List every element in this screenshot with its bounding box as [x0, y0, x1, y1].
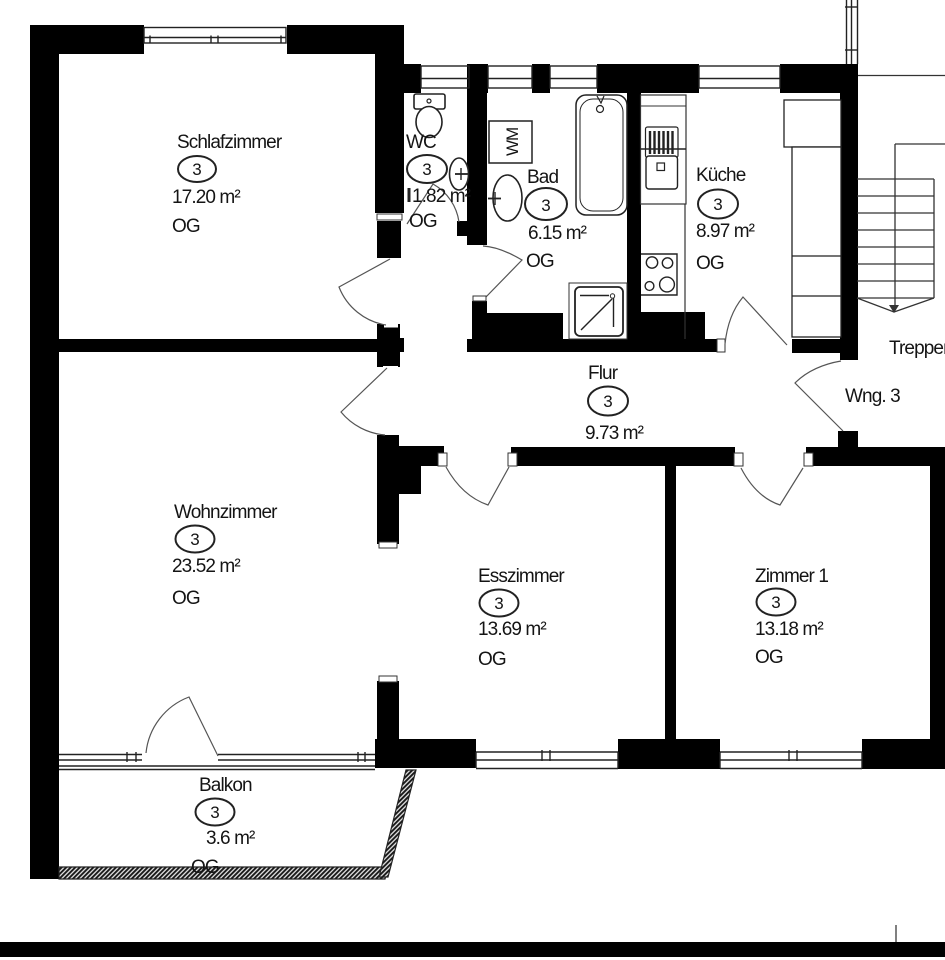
svg-text:Bad: Bad: [527, 167, 558, 188]
svg-text:3: 3: [192, 160, 201, 179]
svg-text:13.69 m²: 13.69 m²: [478, 619, 546, 640]
svg-text:OG: OG: [409, 211, 437, 232]
svg-text:9.73 m²: 9.73 m²: [585, 423, 644, 444]
svg-text:Flur: Flur: [588, 363, 619, 384]
svg-text:Zimmer 1: Zimmer 1: [755, 566, 828, 587]
svg-text:Küche: Küche: [696, 165, 746, 186]
svg-text:OG: OG: [191, 857, 219, 878]
svg-text:OG: OG: [478, 649, 506, 670]
svg-text:3: 3: [771, 593, 780, 612]
svg-text:8.97 m²: 8.97 m²: [696, 221, 755, 242]
svg-text:Schlafzimmer: Schlafzimmer: [177, 132, 283, 153]
svg-text:OG: OG: [696, 253, 724, 274]
svg-text:OG: OG: [172, 588, 200, 609]
svg-text:3: 3: [494, 594, 503, 613]
svg-text:Wohnzimmer: Wohnzimmer: [174, 502, 278, 523]
svg-text:13.18 m²: 13.18 m²: [755, 619, 823, 640]
svg-text:3: 3: [210, 803, 219, 822]
svg-text:3: 3: [713, 195, 722, 214]
svg-text:WC: WC: [406, 132, 436, 153]
svg-text:OG: OG: [755, 647, 783, 668]
svg-text:6.15 m²: 6.15 m²: [528, 223, 587, 244]
svg-text:Wng. 3: Wng. 3: [845, 386, 900, 407]
svg-text:23.52 m²: 23.52 m²: [172, 556, 240, 577]
svg-text:Treppenh: Treppenh: [889, 338, 945, 359]
svg-text:3: 3: [603, 392, 612, 411]
svg-text:WM: WM: [503, 128, 522, 156]
svg-text:1.82 m²: 1.82 m²: [412, 186, 471, 207]
svg-text:OG: OG: [526, 251, 554, 272]
svg-text:Balkon: Balkon: [199, 775, 252, 796]
svg-text:17.20 m²: 17.20 m²: [172, 187, 240, 208]
svg-text:Esszimmer: Esszimmer: [478, 566, 565, 587]
svg-text:3.6 m²: 3.6 m²: [206, 828, 255, 849]
svg-text:3: 3: [422, 160, 431, 179]
svg-text:3: 3: [190, 530, 199, 549]
svg-text:OG: OG: [172, 216, 200, 237]
svg-text:3: 3: [541, 196, 550, 215]
